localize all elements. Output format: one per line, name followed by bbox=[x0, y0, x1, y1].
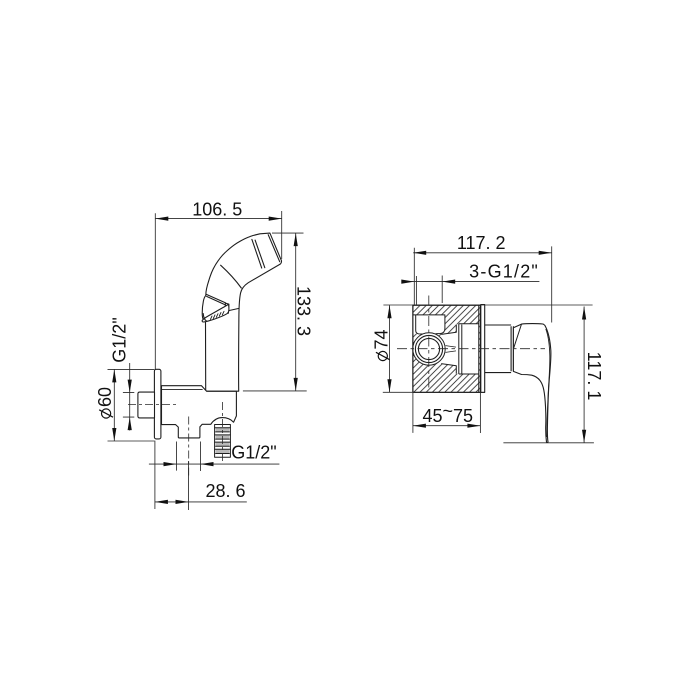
svg-text:G1/2": G1/2" bbox=[231, 443, 276, 463]
svg-text:117. 1: 117. 1 bbox=[584, 352, 604, 401]
svg-text:G1/2": G1/2" bbox=[110, 317, 130, 362]
svg-text:3-G1/2": 3-G1/2" bbox=[469, 262, 539, 282]
svg-text:74: 74 bbox=[372, 329, 392, 349]
svg-text:117. 2: 117. 2 bbox=[457, 233, 506, 253]
svg-text:60: 60 bbox=[95, 387, 115, 407]
svg-text:133. 3: 133. 3 bbox=[293, 286, 313, 336]
svg-text:106. 5: 106. 5 bbox=[192, 199, 242, 219]
svg-text:28. 6: 28. 6 bbox=[205, 481, 245, 501]
